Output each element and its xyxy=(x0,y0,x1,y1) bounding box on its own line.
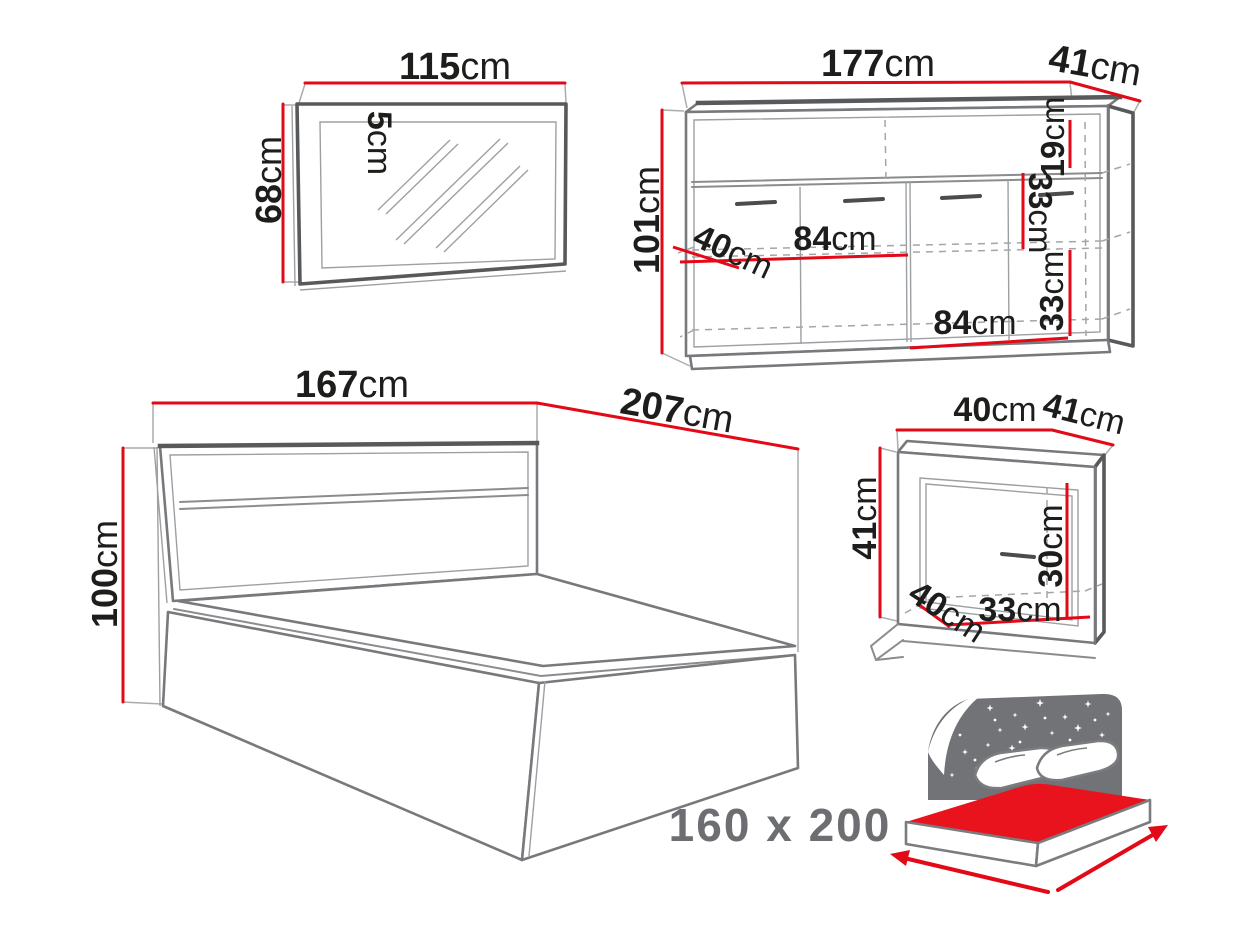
mirror-height-label: 68cm xyxy=(248,136,289,224)
nightstand-drawing: 40cm 41cm 41cm 30cm 33cm 40cm xyxy=(846,386,1129,660)
furniture-dimensions-diagram: 115cm 68cm 5cm xyxy=(0,0,1251,938)
bed-length-label: 207cm xyxy=(617,380,737,441)
dresser-half-width-bottom-label: 84cm xyxy=(933,304,1016,342)
mirror-depth-label: 5cm xyxy=(360,111,398,175)
dresser-height-label: 101cm xyxy=(626,166,667,274)
dresser-bottom-shelf-label: 33cm xyxy=(1033,251,1070,332)
nightstand-height-label: 41cm xyxy=(846,476,884,559)
storage-bed-icon xyxy=(890,693,1168,892)
dresser-half-width-middle-label: 84cm xyxy=(793,220,876,258)
mirror-frame xyxy=(297,104,566,284)
mirror-width-label: 115cm xyxy=(399,46,511,88)
dresser-drawing: 177cm 41cm 101cm 19cm 33cm 33cm 84cm 40c… xyxy=(626,37,1145,369)
dresser-top-shelf-label: 19cm xyxy=(1034,97,1071,178)
nightstand-inner-height-label: 30cm xyxy=(1032,504,1070,587)
dresser-depth-label: 41cm xyxy=(1046,37,1145,95)
nightstand-right-side xyxy=(1095,455,1104,643)
bed-height-label: 100cm xyxy=(84,520,125,628)
bed-width-label: 167cm xyxy=(295,364,409,406)
dresser-middle-shelf-label: 33cm xyxy=(1023,173,1060,254)
nightstand-inner-width-label: 33cm xyxy=(978,591,1061,629)
nightstand-width-label: 40cm xyxy=(953,391,1036,429)
nightstand-depth-label: 41cm xyxy=(1039,386,1129,443)
dresser-width-label: 177cm xyxy=(821,43,935,85)
diagram-canvas: 115cm 68cm 5cm xyxy=(0,0,1251,938)
bed-drawing: 167cm 207cm 100cm xyxy=(84,364,799,860)
mirror-drawing: 115cm 68cm 5cm xyxy=(248,46,567,290)
mattress-size-caption: 160 x 200 xyxy=(669,799,892,851)
